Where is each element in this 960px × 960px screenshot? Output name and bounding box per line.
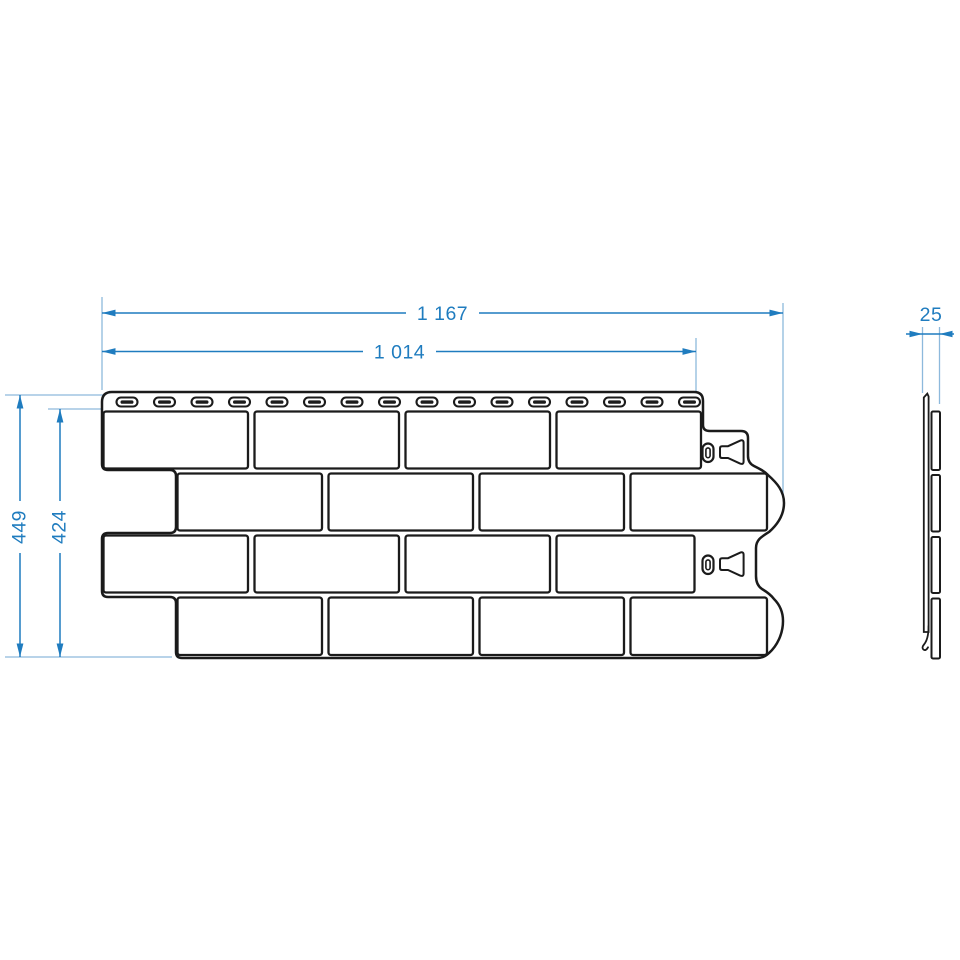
brick xyxy=(480,474,625,531)
brick xyxy=(631,474,768,531)
brick xyxy=(178,474,323,531)
dim-overall-height: 449 xyxy=(9,510,31,544)
brick xyxy=(557,536,695,593)
panel-dimension-drawing: 1 167 1 014 449 424 xyxy=(0,0,960,960)
brick xyxy=(329,474,474,531)
arrow-icon xyxy=(17,644,24,658)
nail-slot-hole xyxy=(421,400,434,403)
nail-slot-hole xyxy=(346,400,359,403)
nail-slot-hole xyxy=(646,400,659,403)
arrow-icon xyxy=(770,310,784,317)
brick xyxy=(406,412,551,469)
nail-slot-hole xyxy=(458,400,471,403)
side-face-segments xyxy=(932,412,941,659)
arrow-icon xyxy=(17,395,24,409)
nail-slot-hole xyxy=(571,400,584,403)
nail-slot-hole xyxy=(308,400,321,403)
side-extension-lines xyxy=(923,327,940,404)
brick xyxy=(104,536,249,593)
nail-slot-hole xyxy=(683,400,696,403)
side-face-segment xyxy=(932,475,941,532)
dim-nominal-height: 424 xyxy=(49,510,71,544)
brick xyxy=(255,536,400,593)
brick xyxy=(406,536,551,593)
arrow-icon xyxy=(683,348,697,355)
side-back-sheet xyxy=(924,394,929,632)
brick xyxy=(631,598,768,656)
nail-slot-hole xyxy=(233,400,246,403)
nail-slot-hole xyxy=(383,400,396,403)
brick xyxy=(480,598,625,656)
nail-slot-hole xyxy=(196,400,209,403)
brick xyxy=(557,412,702,469)
arrow-icon xyxy=(940,331,953,338)
arrow-icon xyxy=(57,644,64,658)
dim-overall-width: 1 167 xyxy=(417,303,468,325)
nail-slot-hole xyxy=(533,400,546,403)
arrow-icon xyxy=(57,409,64,423)
nail-slot-hole xyxy=(158,400,171,403)
technical-drawing-page: 1 167 1 014 449 424 xyxy=(0,0,960,960)
dim-thickness: 25 xyxy=(920,304,943,326)
side-view: 25 xyxy=(906,304,954,659)
brick xyxy=(178,598,323,656)
brick xyxy=(104,412,249,469)
arrow-icon xyxy=(102,348,116,355)
brick xyxy=(255,412,400,469)
side-face-segment xyxy=(932,412,941,471)
side-face-segment xyxy=(932,599,941,659)
nail-slot-hole xyxy=(496,400,509,403)
arrow-icon xyxy=(102,310,116,317)
front-view: 1 167 1 014 449 424 xyxy=(5,297,784,658)
side-face-segment xyxy=(932,537,941,593)
brick xyxy=(329,598,474,656)
dim-nominal-width: 1 014 xyxy=(374,342,425,364)
nail-slot-hole xyxy=(608,400,621,403)
arrow-icon xyxy=(910,331,923,338)
nail-slot-hole xyxy=(121,400,134,403)
nail-slot-hole xyxy=(271,400,284,403)
